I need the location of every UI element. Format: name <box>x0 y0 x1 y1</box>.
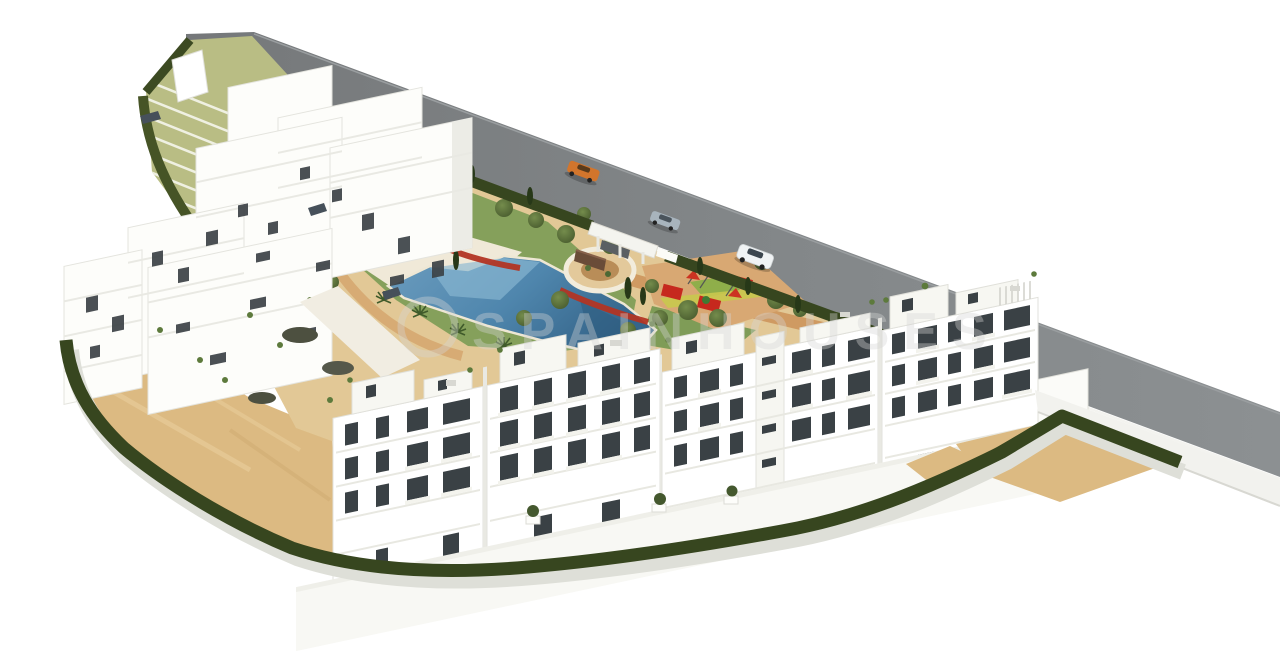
front-apartment-block-a <box>333 355 483 583</box>
scene-svg: SPAINHOUSES <box>0 0 1280 666</box>
hill-retaining-wall <box>172 50 208 102</box>
render-canvas: SPAINHOUSES <box>0 0 1280 666</box>
watermark: SPAINHOUSES <box>401 300 1001 361</box>
watermark-text: SPAINHOUSES <box>472 303 1001 361</box>
